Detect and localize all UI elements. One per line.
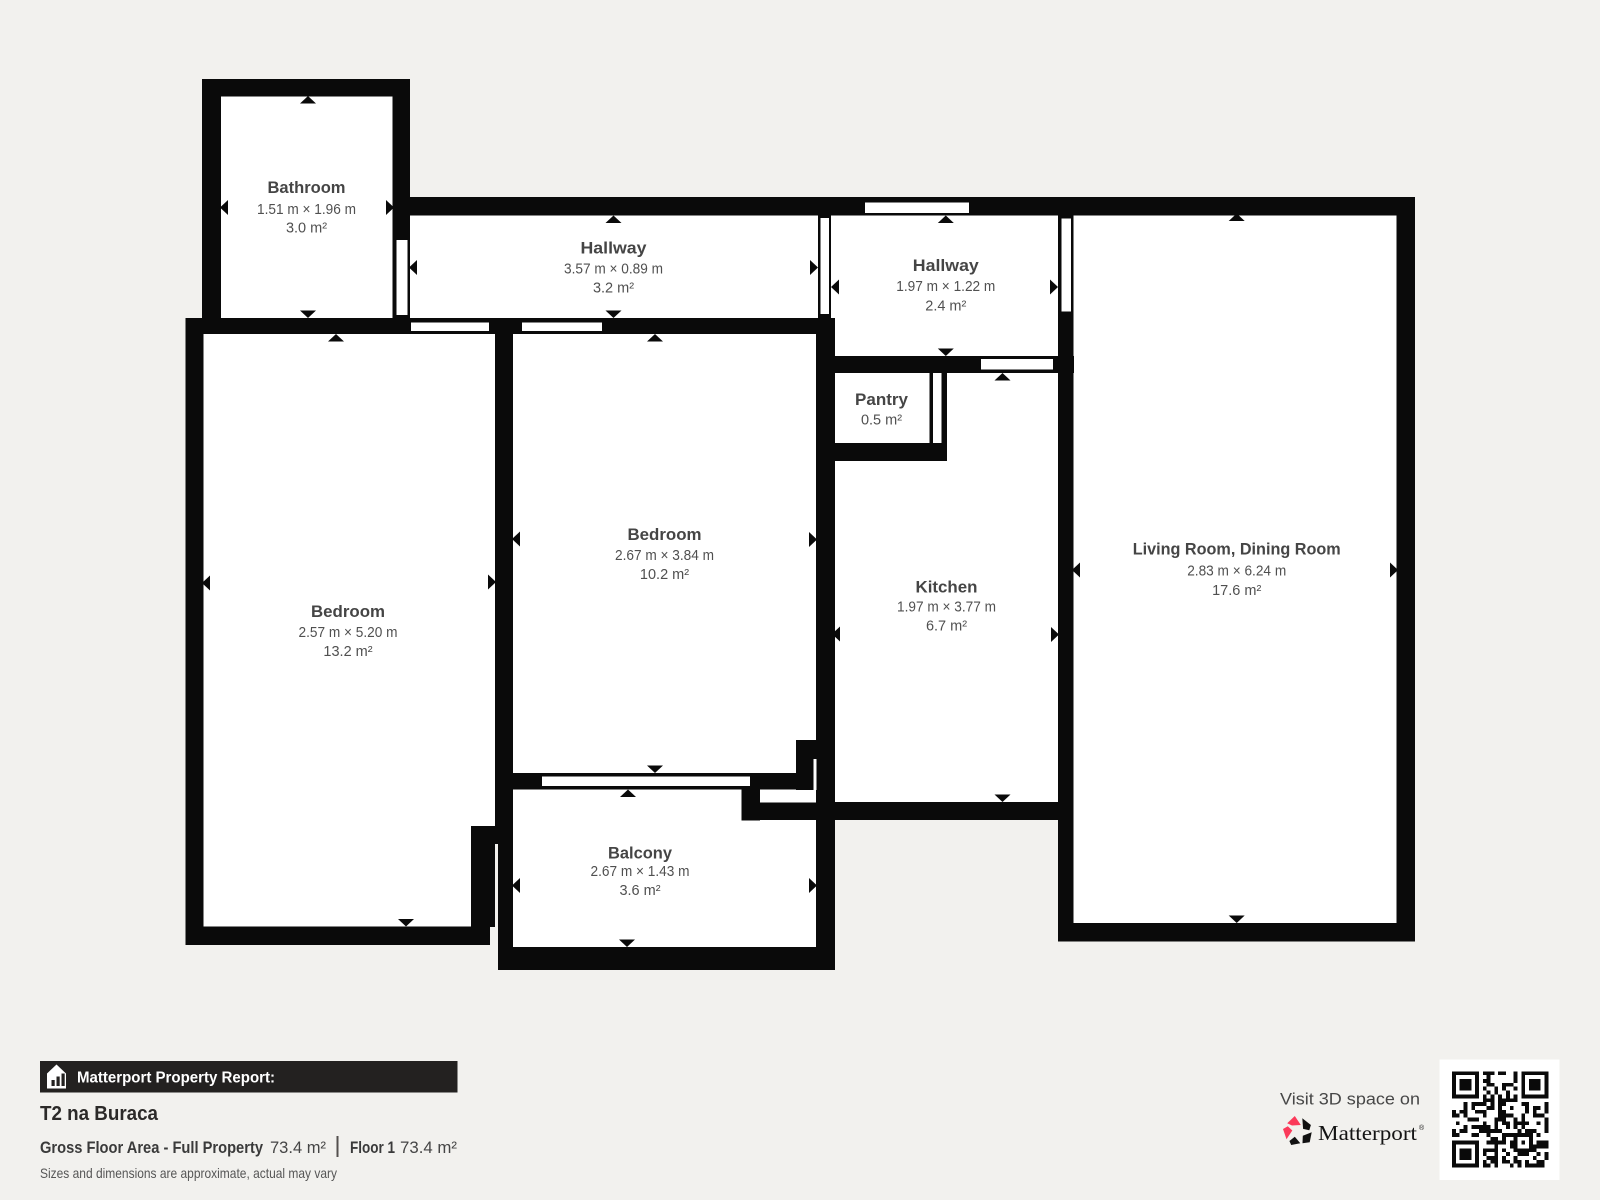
svg-text:®: ®: [1419, 1124, 1425, 1132]
svg-text:Bedroom: Bedroom: [628, 526, 702, 544]
svg-text:Bedroom: Bedroom: [311, 603, 385, 621]
svg-text:Balcony: Balcony: [608, 845, 673, 863]
svg-text:1.97 m × 3.77 m: 1.97 m × 3.77 m: [897, 600, 996, 616]
svg-text:Hallway: Hallway: [913, 257, 980, 275]
svg-text:2.4 m²: 2.4 m²: [925, 299, 966, 315]
svg-text:Visit 3D space on: Visit 3D space on: [1280, 1091, 1420, 1109]
svg-text:T2 na Buraca: T2 na Buraca: [40, 1103, 159, 1125]
svg-text:3.0 m²: 3.0 m²: [286, 221, 327, 237]
svg-text:2.67 m × 3.84 m: 2.67 m × 3.84 m: [615, 548, 714, 564]
svg-text:Matterport Property Report:: Matterport Property Report:: [77, 1070, 275, 1087]
svg-text:17.6 m²: 17.6 m²: [1212, 583, 1261, 599]
svg-text:13.2 m²: 13.2 m²: [323, 644, 372, 660]
svg-text:0.5 m²: 0.5 m²: [861, 413, 902, 429]
svg-text:3.6 m²: 3.6 m²: [619, 883, 660, 899]
svg-text:73.4 m²: 73.4 m²: [400, 1138, 457, 1157]
svg-text:3.2 m²: 3.2 m²: [593, 281, 634, 297]
svg-text:Pantry: Pantry: [855, 391, 909, 409]
svg-text:Living Room, Dining Room: Living Room, Dining Room: [1133, 541, 1341, 559]
svg-text:Kitchen: Kitchen: [916, 579, 978, 597]
svg-text:2.67 m × 1.43 m: 2.67 m × 1.43 m: [591, 864, 690, 880]
svg-text:2.57 m × 5.20 m: 2.57 m × 5.20 m: [299, 625, 398, 641]
svg-text:Matterport: Matterport: [1318, 1121, 1417, 1145]
svg-text:1.51 m × 1.96 m: 1.51 m × 1.96 m: [257, 202, 356, 218]
svg-text:1.97 m × 1.22 m: 1.97 m × 1.22 m: [896, 279, 995, 295]
svg-text:73.4 m²: 73.4 m²: [270, 1138, 326, 1157]
svg-text:Gross Floor Area - Full Proper: Gross Floor Area - Full Property: [40, 1138, 263, 1157]
svg-text:Bathroom: Bathroom: [268, 179, 346, 197]
svg-text:Hallway: Hallway: [581, 240, 648, 258]
svg-text:2.83 m × 6.24 m: 2.83 m × 6.24 m: [1187, 564, 1286, 580]
svg-text:6.7 m²: 6.7 m²: [926, 619, 967, 635]
svg-text:Floor 1: Floor 1: [350, 1138, 395, 1157]
svg-text:3.57 m × 0.89 m: 3.57 m × 0.89 m: [564, 262, 663, 278]
svg-text:Sizes and dimensions are appro: Sizes and dimensions are approximate, ac…: [40, 1165, 337, 1181]
svg-text:10.2 m²: 10.2 m²: [640, 567, 689, 583]
